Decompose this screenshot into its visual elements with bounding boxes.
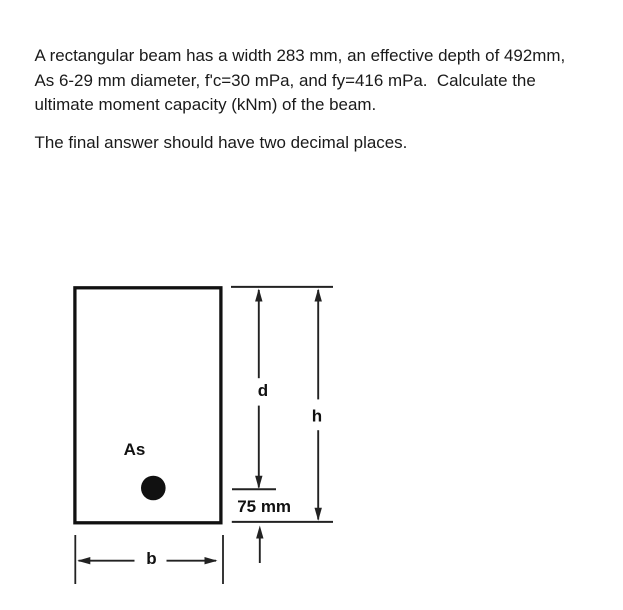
svg-text:As: As bbox=[124, 440, 146, 459]
svg-text:b: b bbox=[146, 549, 156, 568]
svg-text:d: d bbox=[258, 381, 268, 400]
svg-text:75 mm: 75 mm bbox=[237, 497, 291, 516]
svg-text:h: h bbox=[312, 406, 322, 425]
